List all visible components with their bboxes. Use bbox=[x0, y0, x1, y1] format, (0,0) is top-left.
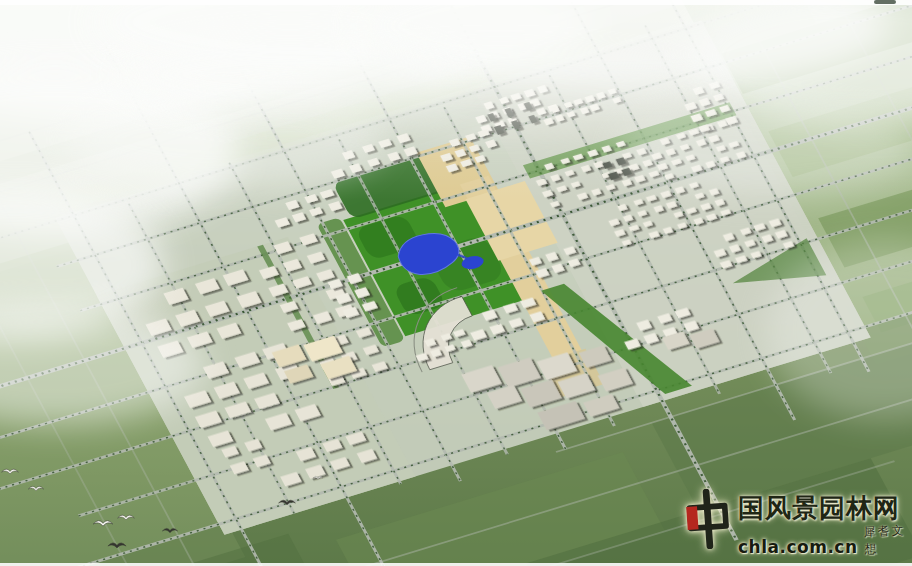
aerial-scene bbox=[0, 0, 912, 566]
top-border bbox=[0, 0, 912, 5]
top-edge-smudge bbox=[874, 0, 896, 4]
mist-cloud bbox=[615, 102, 912, 198]
master-plan-rendering: 国风景园林网 chla.com.cn 犀耆文想 bbox=[0, 0, 912, 566]
mist-cloud bbox=[110, 30, 470, 120]
